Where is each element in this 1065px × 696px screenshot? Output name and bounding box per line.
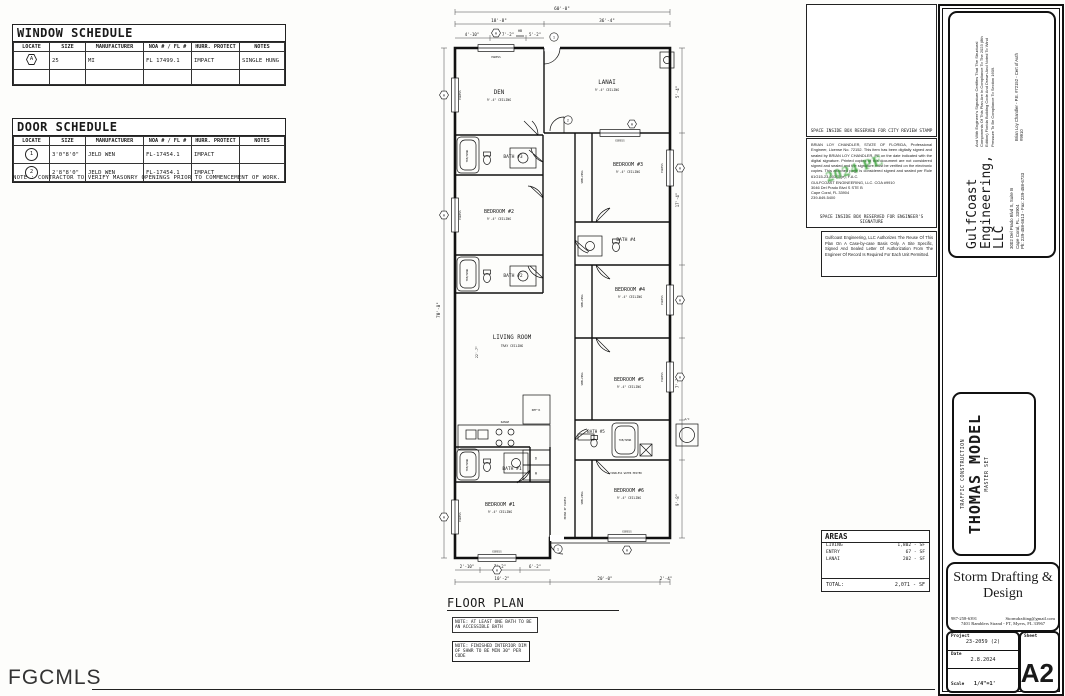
window-schedule-row: A 25 MI FL 17499.1 IMPACT SINGLE HUNG <box>14 52 285 70</box>
svg-text:TUB/SHWR: TUB/SHWR <box>465 458 469 471</box>
window-schedule: WINDOW SCHEDULE LOCATE SIZE MANUFACTURER… <box>12 24 286 86</box>
col-size: SIZE <box>50 43 86 52</box>
svg-text:9'-4" CEILING: 9'-4" CEILING <box>617 385 641 389</box>
svg-text:EGRESS: EGRESS <box>458 512 462 522</box>
svg-text:4'-10": 4'-10" <box>465 32 479 37</box>
engineer-signature-box: BRIAN LOY CHANDLER, STATE OF FLORIDA, Pr… <box>806 138 937 228</box>
interior-walls <box>455 48 670 558</box>
svg-text:EGRESS: EGRESS <box>492 550 502 554</box>
areas-table: AREAS LIVING1,802 - SF ENTRY67 - SF LANA… <box>821 530 930 592</box>
drawing-sheet: WINDOW SCHEDULE LOCATE SIZE MANUFACTURER… <box>0 0 1065 696</box>
svg-text:2'-10": 2'-10" <box>460 564 474 569</box>
firm-name-address: GulfCoast Engineering, LLC 3002 Del Prad… <box>966 149 1038 249</box>
room-bed4: BEDROOM #4 <box>615 287 645 293</box>
svg-text:EGRESS: EGRESS <box>458 210 462 220</box>
room-living: LIVING ROOM <box>493 335 532 341</box>
room-bed3: BEDROOM #3 <box>613 162 643 168</box>
svg-text:TUB/SHWR: TUB/SHWR <box>465 149 469 162</box>
col-noa: NOA # / FL # <box>144 43 192 52</box>
room-bath1: BATH #1 <box>502 466 522 472</box>
drafting-firm-box: Storm Drafting & Design 987-258-6391 Sto… <box>946 562 1060 632</box>
fixture-labels: TUB/SHWR TUB/SHWR TUB/SHWR TUB/SHWR RANG… <box>458 29 690 554</box>
footer-rule <box>92 689 935 690</box>
svg-text:5'-4": 5'-4" <box>675 86 680 98</box>
svg-text:SHELVING: SHELVING <box>580 170 584 183</box>
window-schedule-title: WINDOW SCHEDULE <box>13 25 285 42</box>
svg-text:5'-2": 5'-2" <box>529 32 541 37</box>
project-title-content: TRAFFIC CONSTRUCTION THOMAS MODEL MASTER… <box>960 402 1028 546</box>
sheet-number: A2 <box>1021 658 1054 689</box>
bath-kitchen-fixtures <box>457 36 698 480</box>
window-schedule-empty-row <box>14 70 285 85</box>
plan-note-accessible-bath: NOTE: AT LEAST ONE BATH TO BE AN ACCESSI… <box>452 617 538 633</box>
room-bath4: BATH #4 <box>616 237 636 243</box>
area-row-living: LIVING1,802 - SF <box>822 543 929 550</box>
svg-text:9'-4" CEILING: 9'-4" CEILING <box>595 88 619 92</box>
svg-text:EGRESS: EGRESS <box>660 372 664 382</box>
svg-text:1: 1 <box>553 36 555 40</box>
project-info-table: Project 23-2059 (2) Date 2.8.2024 Scale … <box>946 631 1020 693</box>
svg-text:W: W <box>535 472 537 476</box>
svg-text:60'-0": 60'-0" <box>554 6 570 12</box>
room-labels: DEN 9'-4" CEILING LANAI 9'-4" CEILING BA… <box>484 80 645 514</box>
door-marker-1: 1 <box>25 148 38 161</box>
svg-text:EGRESS: EGRESS <box>458 90 462 100</box>
door-schedule-note: NOTE : CONTRACTOR TO VERIFY MASONRY OPEN… <box>13 175 313 181</box>
svg-text:1: 1 <box>557 548 559 552</box>
svg-text:SHELVING: SHELVING <box>580 294 584 307</box>
date-cell: Date 2.8.2024 <box>948 651 1018 669</box>
col-manufacturer: MANUFACTURER <box>86 43 144 52</box>
set-name: MASTER SET <box>984 402 990 546</box>
sheet-label: Sheet <box>1021 633 1058 640</box>
floor-plan-drawing: 60'-0" 18'-8" 36'-4" 4'-10" 7'-2" 5'-2" … <box>420 0 730 630</box>
footer-brand: FGCMLS <box>8 666 102 690</box>
dimension-lines <box>441 9 685 585</box>
svg-text:EGRESS: EGRESS <box>491 55 501 59</box>
floor-plan-title: FLOOR PLAN <box>447 596 619 611</box>
model-name: THOMAS MODEL <box>966 402 984 546</box>
code-certification-text: And With Engineer's Signature Certifies … <box>974 35 1000 147</box>
svg-text:36'-4": 36'-4" <box>599 18 615 24</box>
plan-note-shower-dim: NOTE: FINISHED INTERIOR DIM OF SHWR TO B… <box>452 641 530 662</box>
svg-text:2: 2 <box>567 119 569 123</box>
col-locate: LOCATE <box>14 43 50 52</box>
svg-text:TANKLESS WATER HEATER: TANKLESS WATER HEATER <box>610 471 642 475</box>
svg-text:SHELVING: SHELVING <box>580 491 584 504</box>
svg-text:9'-4" CEILING: 9'-4" CEILING <box>487 98 511 102</box>
svg-text:HB: HB <box>518 29 522 33</box>
svg-text:SHELVING: SHELVING <box>580 372 584 385</box>
svg-text:9'-4" CEILING: 9'-4" CEILING <box>487 217 511 221</box>
col-hurr: HURR. PROTECT <box>192 43 240 52</box>
svg-text:EGRESS: EGRESS <box>660 163 664 173</box>
door-schedule-header-row: LOCATE SIZE MANUFACTURER NOA # / FL # HU… <box>14 137 285 146</box>
room-bed6: BEDROOM #6 <box>614 488 644 494</box>
areas-title: AREAS <box>822 531 929 543</box>
svg-text:20'-0": 20'-0" <box>597 576 612 581</box>
reuse-authorization-text: Gulfcoast Engineering, LLC Authorizes Th… <box>822 232 936 260</box>
svg-text:2'-4": 2'-4" <box>660 576 673 581</box>
project-title-box: TRAFFIC CONSTRUCTION THOMAS MODEL MASTER… <box>952 392 1036 556</box>
svg-text:RANGE: RANGE <box>501 420 510 424</box>
city-review-reserved-text: SPACE INSIDE BOX RESERVED FOR CITY REVIE… <box>807 129 936 134</box>
window-schedule-header-row: LOCATE SIZE MANUFACTURER NOA # / FL # HU… <box>14 43 285 52</box>
svg-text:EGRESS: EGRESS <box>622 530 632 534</box>
city-review-stamp-box: SPACE INSIDE BOX RESERVED FOR CITY REVIE… <box>806 4 937 137</box>
svg-text:EGRESS: EGRESS <box>660 295 664 305</box>
door-schedule-row: 1 3'0"8'0" JELD WEN FL-17454.1 IMPACT <box>14 146 285 164</box>
svg-text:70'-8": 70'-8" <box>436 302 442 318</box>
reuse-authorization-box: Gulfcoast Engineering, LLC Authorizes Th… <box>821 231 937 277</box>
sheet-number-box: Sheet A2 <box>1019 631 1060 693</box>
engineer-of-record-line: Brian Loy Chandler - P.E. #72152 - Cert … <box>1014 41 1023 141</box>
room-lanai: LANAI <box>598 80 615 86</box>
svg-text:10'-2": 10'-2" <box>494 576 509 581</box>
firm-name-line1: GulfCoast <box>966 149 980 249</box>
title-block-column: And With Engineer's Signature Certifies … <box>938 4 1064 696</box>
svg-text:D: D <box>535 457 537 461</box>
svg-text:REF'R: REF'R <box>532 408 541 412</box>
svg-text:9'-8": 9'-8" <box>675 494 680 506</box>
col-notes: NOTES <box>240 43 285 52</box>
plan-markers: A A A A A A A A A A 1 1 2 <box>440 29 685 574</box>
engineer-firm-box: And With Engineer's Signature Certifies … <box>948 11 1056 258</box>
engineer-reserved-text: SPACE INSIDE BOX RESERVED FOR ENGINEER'S… <box>807 215 936 225</box>
svg-text:EGRESS: EGRESS <box>615 139 625 143</box>
drafting-address: 7401 Ramblers Strand - FT, Myers, FL 339… <box>948 621 1058 626</box>
svg-text:9'-4" CEILING: 9'-4" CEILING <box>617 496 641 500</box>
svg-text:7'-2": 7'-2" <box>502 32 514 37</box>
svg-text:9'-4" CEILING: 9'-4" CEILING <box>618 295 642 299</box>
svg-text:9'-4" CEILING: 9'-4" CEILING <box>616 170 640 174</box>
svg-text:6'-2": 6'-2" <box>529 564 541 569</box>
room-bath3: BATH #3 <box>503 154 523 160</box>
svg-text:TRAY CEILING: TRAY CEILING <box>501 344 523 348</box>
svg-text:22'-7": 22'-7" <box>475 346 479 358</box>
svg-text:9'-4" CEILING: 9'-4" CEILING <box>488 510 512 514</box>
area-row-lanai: LANAI202 - SF <box>822 557 929 564</box>
room-bed1: BEDROOM #1 <box>485 502 515 508</box>
door-schedule-title: DOOR SCHEDULE <box>13 119 285 136</box>
svg-text:TUB/SHWR: TUB/SHWR <box>465 268 469 281</box>
windows <box>452 45 674 562</box>
svg-text:MEANS OF EGRESS: MEANS OF EGRESS <box>563 496 567 519</box>
window-marker-A: A <box>26 54 37 65</box>
areas-total-row: TOTAL:2,071 - SF <box>822 578 929 591</box>
svg-text:A/C: A/C <box>684 417 689 421</box>
drafting-firm-name: Storm Drafting & Design <box>948 564 1058 602</box>
room-bed5: BEDROOM #5 <box>614 377 644 383</box>
door-schedule: DOOR SCHEDULE LOCATE SIZE MANUFACTURER N… <box>12 118 286 183</box>
room-bath2: BATH #2 <box>503 273 523 279</box>
svg-text:18'-8": 18'-8" <box>491 18 507 24</box>
project-number-cell: Project 23-2059 (2) <box>948 633 1018 651</box>
room-bath5: BATH #5 <box>587 429 605 434</box>
svg-text:TUB/SHWR: TUB/SHWR <box>619 438 632 442</box>
room-den: DEN <box>494 90 505 96</box>
svg-text:17'-4": 17'-4" <box>675 193 680 207</box>
room-bed2: BEDROOM #2 <box>484 209 514 215</box>
area-row-entry: ENTRY67 - SF <box>822 550 929 557</box>
scale-cell: Scale 1/4"=1' <box>948 669 1018 683</box>
